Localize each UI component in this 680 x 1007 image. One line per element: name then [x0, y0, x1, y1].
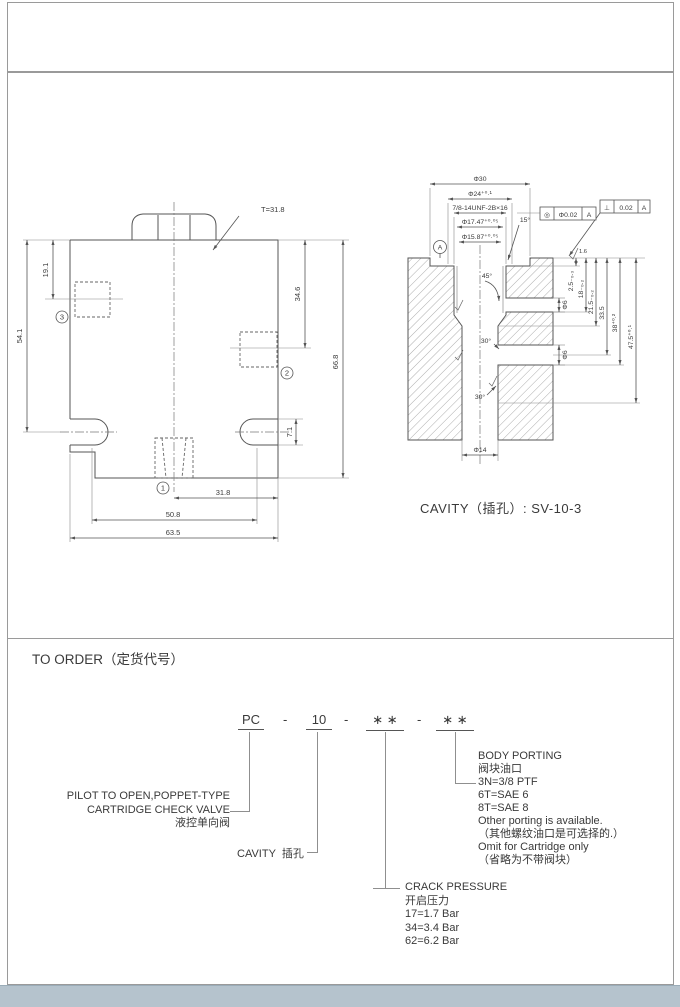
body-porting-line: 6T=SAE 6	[478, 789, 624, 802]
port-2-number: 2	[285, 369, 289, 378]
gdt-perp-datum: A	[642, 205, 647, 212]
body-porting-line: Omit for Cartridge only	[478, 841, 624, 854]
code-body-porting: ∗ ∗	[436, 712, 474, 731]
valve-description-line: 液控单向阀	[67, 817, 230, 831]
dim-dia24: Φ24⁺⁰·¹	[468, 191, 493, 198]
crack-pressure-line: 62=6.2 Bar	[405, 935, 507, 949]
crack-pressure-line: 34=3.4 Bar	[405, 922, 507, 936]
leader-crack-h	[373, 888, 400, 889]
crack-pressure-line: 开启压力	[405, 895, 507, 909]
valve-description-line: CARTRIDGE CHECK VALVE	[67, 804, 230, 818]
dim-dep-2-5: 2.5₋₀.₃	[568, 271, 575, 292]
dim-dia14: Φ14	[474, 447, 487, 454]
rough-value: 1.6	[579, 249, 587, 255]
torque-note: T=31.8	[261, 205, 285, 214]
body-porting-line: 8T=SAE 8	[478, 802, 624, 815]
valve-body-drawing: T=31.8 19.1 54.1 34.6 66.8 7.1 31.8 50.8…	[15, 190, 360, 546]
roughness-mark	[455, 300, 463, 310]
header-divider	[7, 71, 673, 73]
leader-model	[249, 732, 250, 811]
gdt-perp-symbol: ⊥	[604, 205, 610, 212]
block-mid-right	[498, 312, 553, 345]
valve-description-line: PILOT TO OPEN,POPPET-TYPE	[67, 790, 230, 804]
ang-30-lower: 30°	[475, 393, 486, 401]
body-porting-line: 阀块油口	[478, 763, 624, 776]
dim-66-8: 66.8	[331, 355, 340, 370]
order-heading: TO ORDER（定货代号）	[32, 648, 184, 668]
ang-45: 45°	[482, 272, 493, 280]
code-cavity: 10	[306, 712, 332, 730]
dim-dia6-upper: Φ6	[562, 300, 569, 309]
dim-dia6-lower: Φ6	[562, 350, 569, 359]
leader-cavity	[317, 732, 318, 852]
block-left	[408, 258, 462, 440]
dim-54-1: 54.1	[15, 329, 24, 344]
body-porting-line: （省略为不带阀块）	[478, 854, 624, 867]
dim-dia17-47: Φ17.47⁺⁰·⁰⁵	[462, 219, 499, 226]
port-3-number: 3	[60, 313, 64, 322]
cavity-drawing: Φ30 Φ24⁺⁰·¹ 7/8-14UNF-2B×16 Φ17.47⁺⁰·⁰⁵ …	[395, 165, 675, 475]
dim-7-1: 7.1	[285, 427, 294, 437]
cavity-caption: CAVITY（插孔）: SV-10-3	[420, 498, 582, 517]
body-porting-line: 3N=3/8 PTF	[478, 776, 624, 789]
gdt-conc-tol: Φ0.02	[559, 212, 578, 219]
port-1-number: 1	[161, 484, 165, 493]
code-sep-1: -	[283, 712, 287, 727]
datasheet-page: T=31.8 19.1 54.1 34.6 66.8 7.1 31.8 50.8…	[0, 0, 680, 1007]
code-model: PC	[238, 712, 264, 730]
datum-a-label: A	[438, 245, 443, 252]
leader-cavity-h	[307, 852, 318, 853]
gdt-conc-symbol: ◎	[544, 212, 550, 219]
port-3-outline	[75, 282, 110, 317]
body-porting-line: Other porting is available.	[478, 815, 624, 828]
cavity-code-label: CAVITY 插孔	[237, 845, 304, 861]
gdt-conc-datum: A	[587, 212, 592, 219]
body-porting-line: （其他螺纹油口是可选择的.）	[478, 828, 624, 841]
code-sep-3: -	[417, 712, 421, 727]
body-porting-block: BODY PORTING 阀块油口 3N=3/8 PTF 6T=SAE 6 8T…	[478, 750, 624, 867]
block-upper-right	[506, 258, 553, 298]
leader-porting	[455, 732, 456, 783]
gdt-perp-tol: 0.02	[619, 205, 632, 212]
dim-dep-21-5: 21.5₋₀.₂	[588, 290, 595, 315]
dim-34-6: 34.6	[293, 287, 302, 302]
leader-model-h	[230, 811, 250, 812]
dim-dep-47-5: 47.5⁺⁰·¹	[628, 324, 635, 349]
footer-bar	[0, 985, 680, 1007]
code-sep-2: -	[344, 712, 348, 727]
crack-pressure-block: CRACK PRESSURE 开启压力 17=1.7 Bar 34=3.4 Ba…	[405, 881, 507, 949]
leader-crack	[385, 732, 386, 888]
dim-50-8: 50.8	[166, 510, 181, 519]
dim-19-1: 19.1	[41, 263, 50, 278]
crack-pressure-line: CRACK PRESSURE	[405, 881, 507, 895]
dim-dep-33-5: 33.5	[599, 306, 606, 319]
dim-dep-38: 38⁺⁰·²	[612, 313, 619, 332]
dim-dia30: Φ30	[474, 176, 487, 183]
ang-15: 15°	[520, 216, 531, 224]
block-lower-right	[498, 365, 553, 440]
roughness-mark	[489, 376, 497, 386]
crack-pressure-line: 17=1.7 Bar	[405, 908, 507, 922]
leader-porting-h	[455, 783, 476, 784]
valve-description: PILOT TO OPEN,POPPET-TYPE CARTRIDGE CHEC…	[67, 790, 230, 831]
dim-31-8: 31.8	[216, 488, 231, 497]
port-2-outline	[240, 332, 277, 367]
dim-dia15-87: Φ15.87⁺⁰·⁰⁵	[462, 234, 499, 241]
dim-thread: 7/8-14UNF-2B×16	[452, 205, 508, 212]
code-crack-pressure: ∗ ∗	[366, 712, 404, 731]
section-divider	[7, 638, 673, 639]
ang-30-upper: 30°	[481, 337, 492, 345]
dim-dep-18: 18₋₀.₂	[578, 279, 585, 298]
body-porting-line: BODY PORTING	[478, 750, 624, 763]
dim-63-5: 63.5	[166, 528, 181, 537]
